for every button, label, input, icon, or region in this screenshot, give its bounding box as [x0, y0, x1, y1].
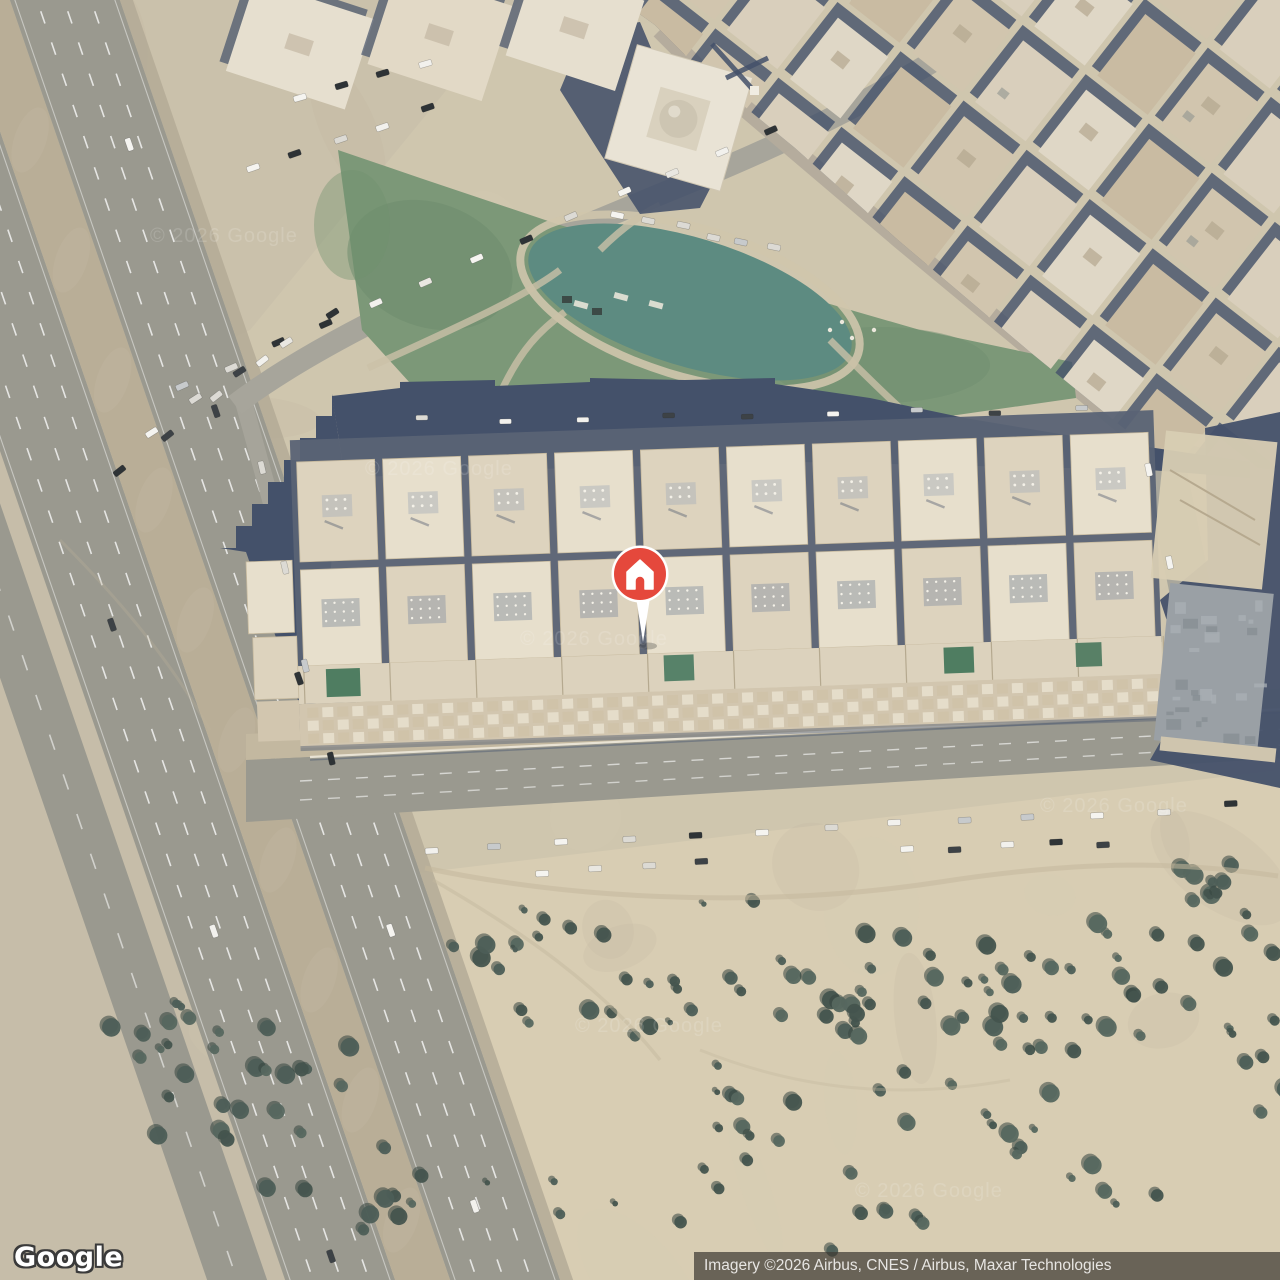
imagery-attribution: Imagery ©2026 Airbus, CNES / Airbus, Max…	[694, 1252, 1280, 1280]
location-pin[interactable]	[595, 530, 695, 655]
google-logo[interactable]: Google	[14, 1242, 123, 1273]
pin-tail	[636, 597, 650, 642]
building-compound	[242, 410, 1166, 753]
pin-ground-shadow	[639, 643, 657, 650]
construction-site	[1151, 431, 1278, 763]
map-viewport[interactable]: © 2026 Google © 2026 Google © 2026 Googl…	[0, 0, 1280, 1280]
